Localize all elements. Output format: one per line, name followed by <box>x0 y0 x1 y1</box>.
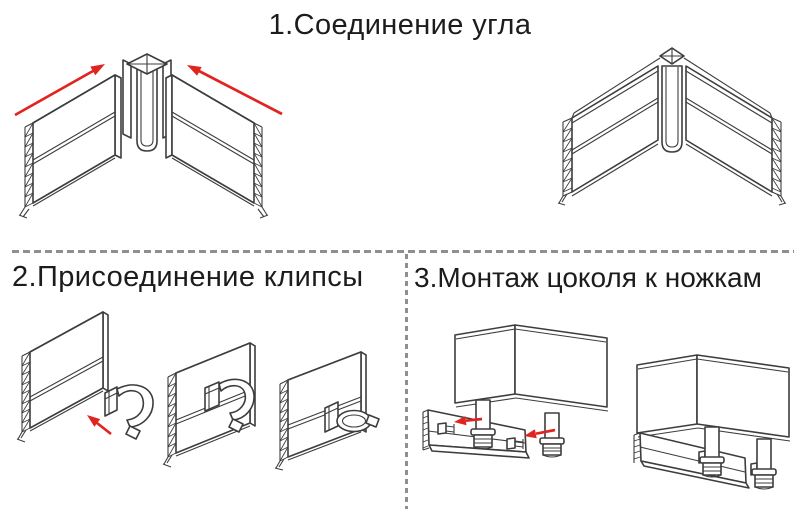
corner-connector <box>123 54 171 151</box>
hollow-chamber-edge <box>280 380 288 461</box>
panel-with-clip-inserted <box>163 343 255 467</box>
hollow-chamber-edge <box>772 118 781 196</box>
step1-title: 1.Соединение угла <box>0 9 800 42</box>
plinth-strip-mounted <box>634 433 749 488</box>
corner-joint-assembled-diagram <box>550 42 790 212</box>
right-plinth-panel <box>166 75 268 218</box>
horizontal-divider <box>12 250 794 253</box>
left-plinth-panel <box>558 66 658 205</box>
right-plinth-panel <box>686 66 786 205</box>
corner-joint-exploded-diagram <box>5 45 295 225</box>
cabinet-box <box>455 325 608 411</box>
hollow-chamber-edge <box>25 123 33 207</box>
bottom-seal-lip <box>19 207 29 218</box>
bottom-seal-lip <box>163 455 172 467</box>
plinth-clip <box>105 385 153 439</box>
hollow-chamber-edge <box>22 352 30 432</box>
bottom-seal-lip <box>17 430 26 442</box>
clip-attachment-diagram <box>8 298 400 478</box>
bottom-seal-lip <box>258 207 268 218</box>
hollow-chamber-edge <box>168 373 176 457</box>
adjustable-leg <box>751 439 776 489</box>
hollow-chamber-edge <box>254 123 262 207</box>
plinth-mounting-diagram <box>412 300 800 509</box>
vertical-divider <box>405 254 408 509</box>
left-plinth-panel <box>19 75 121 218</box>
hollow-chamber-edge <box>563 118 572 196</box>
step2-title: 2.Присоединение клипсы <box>12 261 363 294</box>
adjustable-leg <box>540 413 564 457</box>
panel-with-clip-locked <box>275 352 379 470</box>
panel-with-loose-clip <box>17 312 153 442</box>
corner-connector <box>660 48 684 152</box>
instruction-sheet: 1.Соединение угла 2.Присоединение клипсы… <box>0 0 800 509</box>
direction-arrow-icon <box>87 415 111 434</box>
step3-title: 3.Монтаж цоколя к ножкам <box>414 262 762 294</box>
clip-tab <box>126 426 140 439</box>
